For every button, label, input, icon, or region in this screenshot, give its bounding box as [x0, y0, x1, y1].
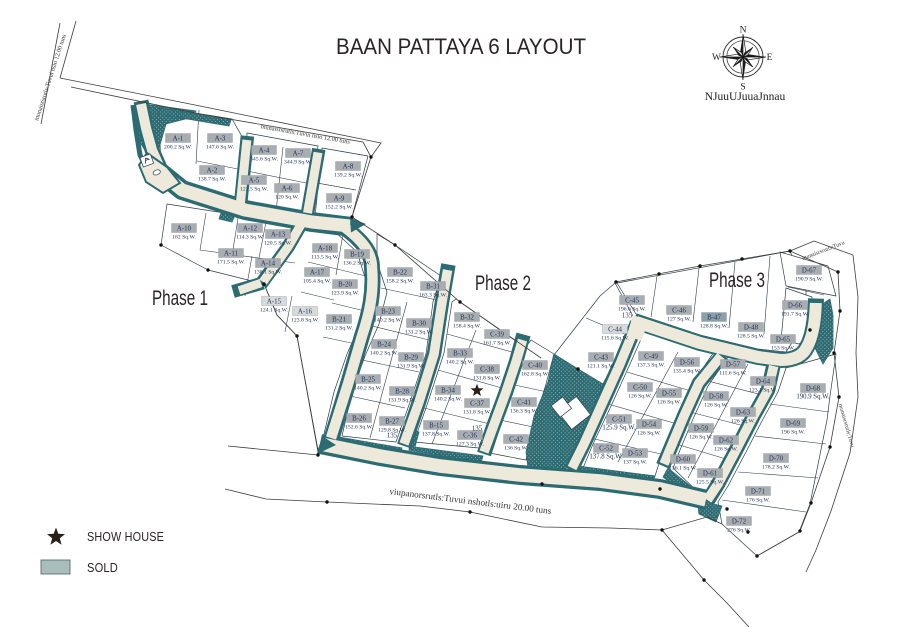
svg-text:C-43: C-43	[594, 355, 608, 362]
svg-text:A-2: A-2	[207, 168, 218, 175]
svg-text:114.3 Sq.W.: 114.3 Sq.W.	[236, 235, 264, 241]
svg-text:182 Sq.W.: 182 Sq.W.	[172, 235, 196, 241]
svg-text:123.1 Sq.W.: 123.1 Sq.W.	[749, 388, 777, 394]
svg-text:140.2 Sq.W.: 140.2 Sq.W.	[374, 318, 402, 324]
svg-text:C-39: C-39	[490, 332, 504, 339]
svg-text:Phase 1: Phase 1	[152, 287, 208, 310]
svg-text:B-21: B-21	[332, 317, 346, 324]
svg-text:B-32: B-32	[460, 315, 474, 322]
svg-text:D-70: D-70	[769, 456, 784, 463]
svg-text:C-38: C-38	[480, 367, 494, 374]
svg-text:136.1 Sq.W.: 136.1 Sq.W.	[669, 466, 697, 472]
svg-text:B-15: B-15	[429, 423, 443, 430]
svg-text:C-51: C-51	[612, 417, 626, 424]
svg-text:D-61: D-61	[703, 471, 718, 478]
svg-text:344.9 Sq.W.: 344.9 Sq.W.	[284, 160, 312, 166]
svg-text:A-17: A-17	[310, 270, 325, 277]
svg-text:Phase 3: Phase 3	[709, 269, 765, 292]
svg-text:B-34: B-34	[441, 388, 455, 395]
svg-text:B-23: B-23	[381, 309, 395, 316]
svg-text:C-46: C-46	[672, 308, 686, 315]
svg-text:B-19: B-19	[350, 252, 364, 259]
svg-text:D-63: D-63	[736, 410, 751, 417]
svg-text:137.8 Sq.W.: 137.8 Sq.W.	[589, 454, 623, 461]
svg-text:111.6 Sq.W.: 111.6 Sq.W.	[719, 371, 747, 377]
svg-text:E: E	[767, 53, 773, 63]
svg-text:127 Sq.W.: 127 Sq.W.	[667, 317, 691, 323]
svg-text:B-28: B-28	[395, 389, 409, 396]
svg-text:D-65: D-65	[776, 337, 791, 344]
svg-text:138.1 Sq.W.: 138.1 Sq.W.	[254, 270, 282, 276]
svg-text:135: 135	[472, 425, 483, 433]
svg-text:D-66: D-66	[788, 303, 803, 310]
svg-text:126 Sq.W.: 126 Sq.W.	[657, 400, 681, 406]
svg-text:196 Sq.W.: 196 Sq.W.	[781, 430, 805, 436]
svg-text:D-60: D-60	[676, 457, 691, 464]
svg-text:D-72: D-72	[732, 519, 747, 526]
svg-text:A-4: A-4	[259, 148, 270, 155]
svg-text:A-9: A-9	[334, 196, 345, 203]
svg-text:D-69: D-69	[786, 421, 801, 428]
svg-text:137.8 Sq.W.: 137.8 Sq.W.	[422, 432, 450, 438]
svg-text:125.5 Sq.W.: 125.5 Sq.W.	[696, 480, 724, 486]
svg-text:D-58: D-58	[709, 394, 724, 401]
svg-text:158.4 Sq.W.: 158.4 Sq.W.	[453, 324, 481, 330]
svg-text:C-42: C-42	[509, 437, 523, 444]
svg-text:A-10: A-10	[177, 226, 192, 233]
svg-text:200.2 Sq.W.: 200.2 Sq.W.	[164, 145, 192, 151]
svg-text:131.9 Sq.W.: 131.9 Sq.W.	[388, 398, 416, 404]
svg-text:125.9 Sq.W.: 125.9 Sq.W.	[602, 425, 636, 432]
svg-text:153 Sq.W.: 153 Sq.W.	[771, 346, 795, 352]
svg-text:C-45: C-45	[625, 298, 639, 305]
svg-text:147.6 Sq.W.: 147.6 Sq.W.	[206, 145, 234, 151]
svg-text:136 Sq.W.: 136 Sq.W.	[504, 446, 528, 452]
svg-text:D-53: D-53	[628, 451, 643, 458]
svg-text:140.2 Sq.W.: 140.2 Sq.W.	[370, 351, 398, 357]
svg-text:SHOW HOUSE: SHOW HOUSE	[87, 530, 164, 544]
svg-text:123.9 Sq.W.: 123.9 Sq.W.	[331, 291, 359, 297]
svg-text:B-26: B-26	[352, 416, 366, 423]
svg-text:A-15: A-15	[267, 299, 282, 306]
svg-text:D-62: D-62	[719, 438, 734, 445]
svg-text:A-8: A-8	[343, 164, 354, 171]
svg-text:D-56: D-56	[680, 360, 695, 367]
svg-text:161.7 Sq.W.: 161.7 Sq.W.	[483, 341, 511, 347]
svg-text:W: W	[712, 53, 721, 63]
svg-text:B-30: B-30	[412, 321, 426, 328]
svg-text:A-6: A-6	[282, 186, 293, 193]
svg-text:C-41: C-41	[517, 400, 531, 407]
svg-text:C-36: C-36	[463, 433, 477, 440]
svg-text:C-50: C-50	[633, 385, 647, 392]
svg-text:A-13: A-13	[271, 232, 286, 239]
svg-text:121.5 Sq.W.: 121.5 Sq.W.	[240, 187, 268, 193]
svg-text:135: 135	[387, 432, 398, 440]
svg-text:D-54: D-54	[642, 422, 657, 429]
svg-text:C-49: C-49	[644, 354, 658, 361]
svg-text:B-25: B-25	[361, 377, 375, 384]
svg-text:B-24: B-24	[377, 342, 391, 349]
svg-text:B-27: B-27	[385, 419, 399, 426]
svg-text:N: N	[740, 26, 747, 36]
svg-text:B-33: B-33	[453, 351, 467, 358]
svg-text:D-55: D-55	[662, 391, 677, 398]
svg-text:138.7 Sq.W.: 138.7 Sq.W.	[198, 177, 226, 183]
svg-text:115.6 Sq.W.: 115.6 Sq.W.	[601, 336, 629, 342]
svg-text:178.2 Sq.W.: 178.2 Sq.W.	[762, 465, 790, 471]
svg-text:124.1 Sq.W.: 124.1 Sq.W.	[260, 308, 288, 314]
svg-text:139.2 Sq.W.: 139.2 Sq.W.	[334, 173, 362, 179]
svg-text:A-3: A-3	[215, 136, 226, 143]
svg-text:162.8 Sq.W.: 162.8 Sq.W.	[521, 372, 549, 378]
svg-text:A-1: A-1	[173, 136, 184, 143]
svg-text:A-5: A-5	[249, 178, 260, 185]
svg-text:128.5 Sq.W.: 128.5 Sq.W.	[737, 334, 765, 340]
svg-text:126 Sq.W.: 126 Sq.W.	[628, 394, 652, 400]
svg-text:137.3 Sq.W.: 137.3 Sq.W.	[637, 363, 665, 369]
svg-text:276 Sq.W.: 276 Sq.W.	[727, 528, 751, 534]
svg-text:140.2 Sq.W.: 140.2 Sq.W.	[446, 360, 474, 366]
svg-text:NJuuUJuuaJnnau: NJuuUJuuaJnnau	[705, 91, 786, 103]
svg-text:126 Sq.W.: 126 Sq.W.	[704, 403, 728, 409]
svg-text:B-47: B-47	[707, 315, 721, 322]
svg-text:176 Sq.W.: 176 Sq.W.	[746, 498, 770, 504]
svg-text:B-22: B-22	[393, 270, 407, 277]
svg-text:126 Sq.W.: 126 Sq.W.	[714, 447, 738, 453]
svg-text:D-68: D-68	[806, 386, 821, 393]
svg-text:345.6 Sq.W.: 345.6 Sq.W.	[250, 157, 278, 163]
svg-text:171.5 Sq.W.: 171.5 Sq.W.	[217, 260, 245, 266]
svg-text:C-44: C-44	[608, 327, 622, 334]
svg-text:120 Sq.W.: 120 Sq.W.	[275, 195, 299, 201]
svg-text:BAAN PATTAYA 6 LAYOUT: BAAN PATTAYA 6 LAYOUT	[336, 34, 586, 59]
svg-text:131.2 Sq.W.: 131.2 Sq.W.	[405, 330, 433, 336]
svg-text:A-12: A-12	[243, 226, 258, 233]
svg-text:152.6 Sq.W.: 152.6 Sq.W.	[345, 425, 373, 431]
svg-text:A-14: A-14	[261, 261, 276, 268]
svg-text:D-59: D-59	[694, 426, 709, 433]
svg-text:126 Sq.W.: 126 Sq.W.	[689, 435, 713, 441]
svg-text:D-67: D-67	[802, 268, 817, 275]
svg-text:152.2 Sq.W.: 152.2 Sq.W.	[325, 205, 353, 211]
svg-text:120.5 Sq.W.: 120.5 Sq.W.	[264, 241, 292, 247]
svg-text:A-16: A-16	[298, 309, 313, 316]
svg-text:136.3 Sq.W.: 136.3 Sq.W.	[510, 409, 538, 415]
svg-text:135.4 Sq.W.: 135.4 Sq.W.	[673, 369, 701, 375]
svg-text:135: 135	[622, 312, 633, 320]
svg-text:190.9 Sq.W.: 190.9 Sq.W.	[796, 394, 830, 401]
svg-text:113.5 Sq.W.: 113.5 Sq.W.	[311, 255, 339, 261]
svg-text:127.3 Sq.W.: 127.3 Sq.W.	[456, 442, 484, 448]
svg-text:C-40: C-40	[528, 363, 542, 370]
svg-text:163.3 Sq.W.: 163.3 Sq.W.	[419, 293, 447, 299]
svg-text:C-52: C-52	[599, 446, 613, 453]
svg-text:137 Sq.W.: 137 Sq.W.	[623, 460, 647, 466]
svg-text:105.4 Sq.W.: 105.4 Sq.W.	[303, 279, 331, 285]
svg-text:D-71: D-71	[751, 489, 766, 496]
svg-text:C-37: C-37	[470, 401, 484, 408]
svg-text:128.8 Sq.W.: 128.8 Sq.W.	[700, 324, 728, 330]
svg-text:131.8 Sq.W.: 131.8 Sq.W.	[473, 376, 501, 382]
svg-text:126 Sq.W.: 126 Sq.W.	[637, 431, 661, 437]
svg-text:D-48: D-48	[744, 325, 759, 332]
svg-text:131.2 Sq.W.: 131.2 Sq.W.	[325, 326, 353, 332]
svg-text:A-7: A-7	[293, 151, 304, 158]
svg-text:190.9 Sq.W.: 190.9 Sq.W.	[795, 277, 823, 283]
svg-text:131.8 Sq.W.: 131.8 Sq.W.	[463, 410, 491, 416]
svg-text:140.2 Sq.W.: 140.2 Sq.W.	[354, 386, 382, 392]
svg-text:SOLD: SOLD	[87, 561, 118, 575]
svg-text:140.2 Sq.W.: 140.2 Sq.W.	[434, 397, 462, 403]
svg-text:B-29: B-29	[404, 355, 418, 362]
svg-text:A-11: A-11	[224, 251, 238, 258]
svg-text:158.2 Sq.W.: 158.2 Sq.W.	[386, 279, 414, 285]
svg-text:D-57: D-57	[726, 362, 741, 369]
svg-text:123.8 Sq.W.: 123.8 Sq.W.	[291, 318, 319, 324]
svg-text:191.7 Sq.W.: 191.7 Sq.W.	[781, 312, 809, 318]
svg-text:Phase 2: Phase 2	[475, 272, 531, 295]
svg-text:131.9 Sq.W.: 131.9 Sq.W.	[397, 364, 425, 370]
svg-text:B-20: B-20	[338, 282, 352, 289]
svg-text:A-18: A-18	[318, 246, 333, 253]
svg-text:D-64: D-64	[756, 379, 771, 386]
svg-text:126 Sq.W.: 126 Sq.W.	[731, 419, 755, 425]
svg-text:B-31: B-31	[426, 284, 440, 291]
svg-text:136.2 Sq.W.: 136.2 Sq.W.	[343, 261, 371, 267]
svg-text:121.1 Sq.W.: 121.1 Sq.W.	[587, 364, 615, 370]
